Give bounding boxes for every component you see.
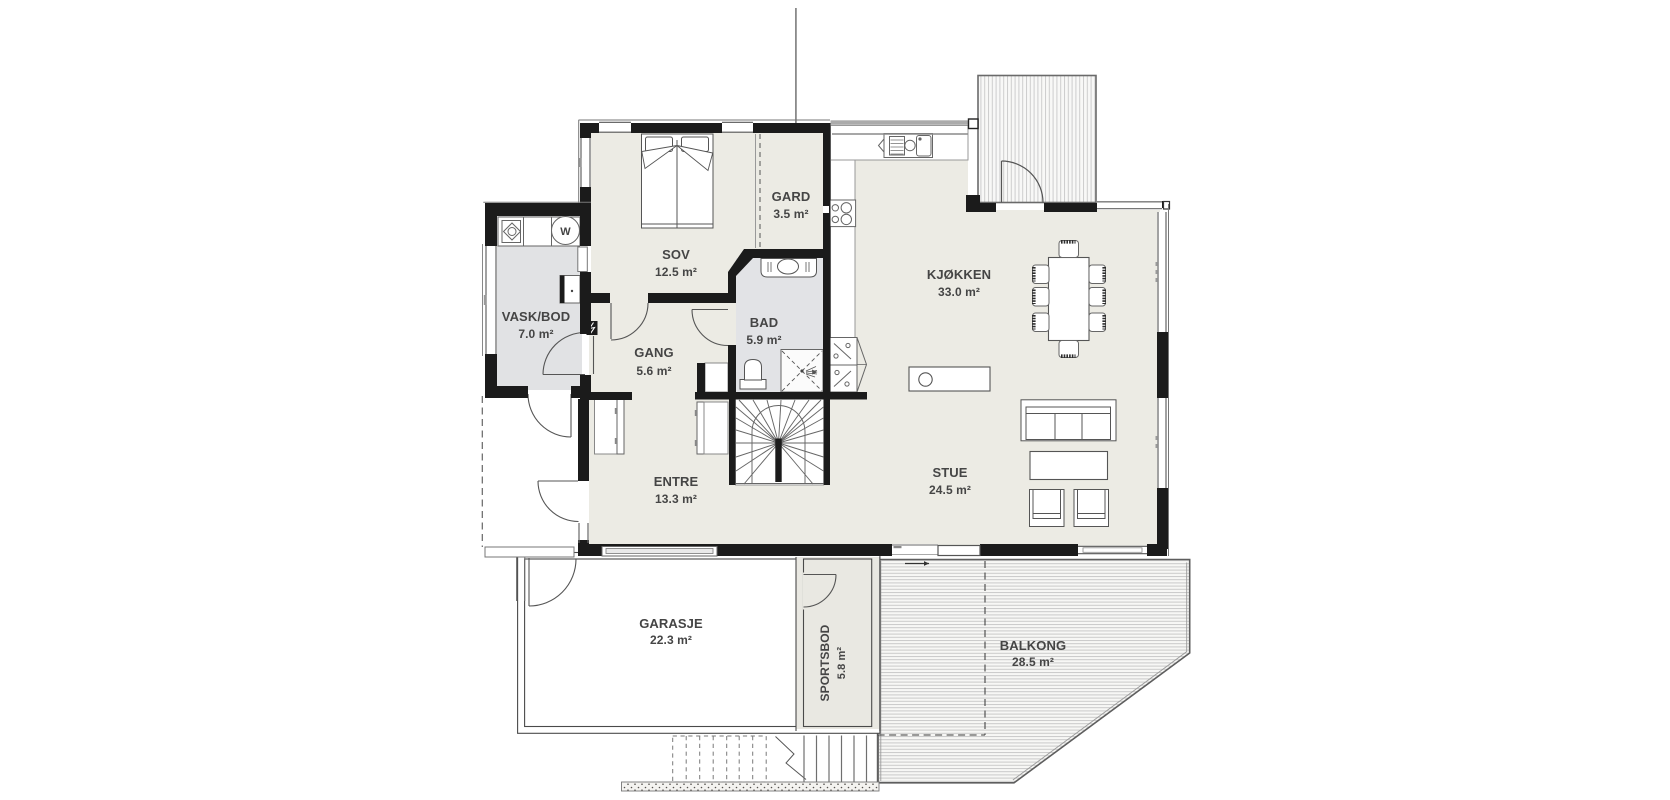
svg-text:KJØKKEN: KJØKKEN bbox=[927, 267, 991, 282]
svg-text:5.6 m²: 5.6 m² bbox=[636, 364, 671, 378]
svg-text:33.0 m²: 33.0 m² bbox=[938, 285, 980, 299]
svg-text:5.9 m²: 5.9 m² bbox=[746, 333, 781, 347]
svg-text:BAD: BAD bbox=[750, 315, 778, 330]
svg-text:24.5 m²: 24.5 m² bbox=[929, 483, 971, 497]
svg-text:ENTRE: ENTRE bbox=[654, 474, 699, 489]
svg-text:28.5 m²: 28.5 m² bbox=[1012, 655, 1054, 669]
svg-text:5.8 m²: 5.8 m² bbox=[836, 647, 848, 680]
svg-text:GANG: GANG bbox=[634, 345, 673, 360]
svg-text:GARD: GARD bbox=[772, 189, 811, 204]
svg-text:W: W bbox=[560, 226, 571, 238]
svg-text:13.3 m²: 13.3 m² bbox=[655, 492, 697, 506]
svg-text:GARASJE: GARASJE bbox=[639, 616, 703, 631]
svg-text:7.0 m²: 7.0 m² bbox=[518, 327, 553, 341]
svg-text:BALKONG: BALKONG bbox=[1000, 638, 1066, 653]
svg-text:VASK/BOD: VASK/BOD bbox=[502, 309, 570, 324]
svg-text:SPORTSBOD: SPORTSBOD bbox=[818, 624, 832, 701]
svg-text:SOV: SOV bbox=[662, 247, 690, 262]
svg-text:3.5 m²: 3.5 m² bbox=[773, 207, 808, 221]
svg-text:12.5 m²: 12.5 m² bbox=[655, 265, 697, 279]
svg-text:STUE: STUE bbox=[932, 465, 967, 480]
svg-text:22.3 m²: 22.3 m² bbox=[650, 633, 692, 647]
